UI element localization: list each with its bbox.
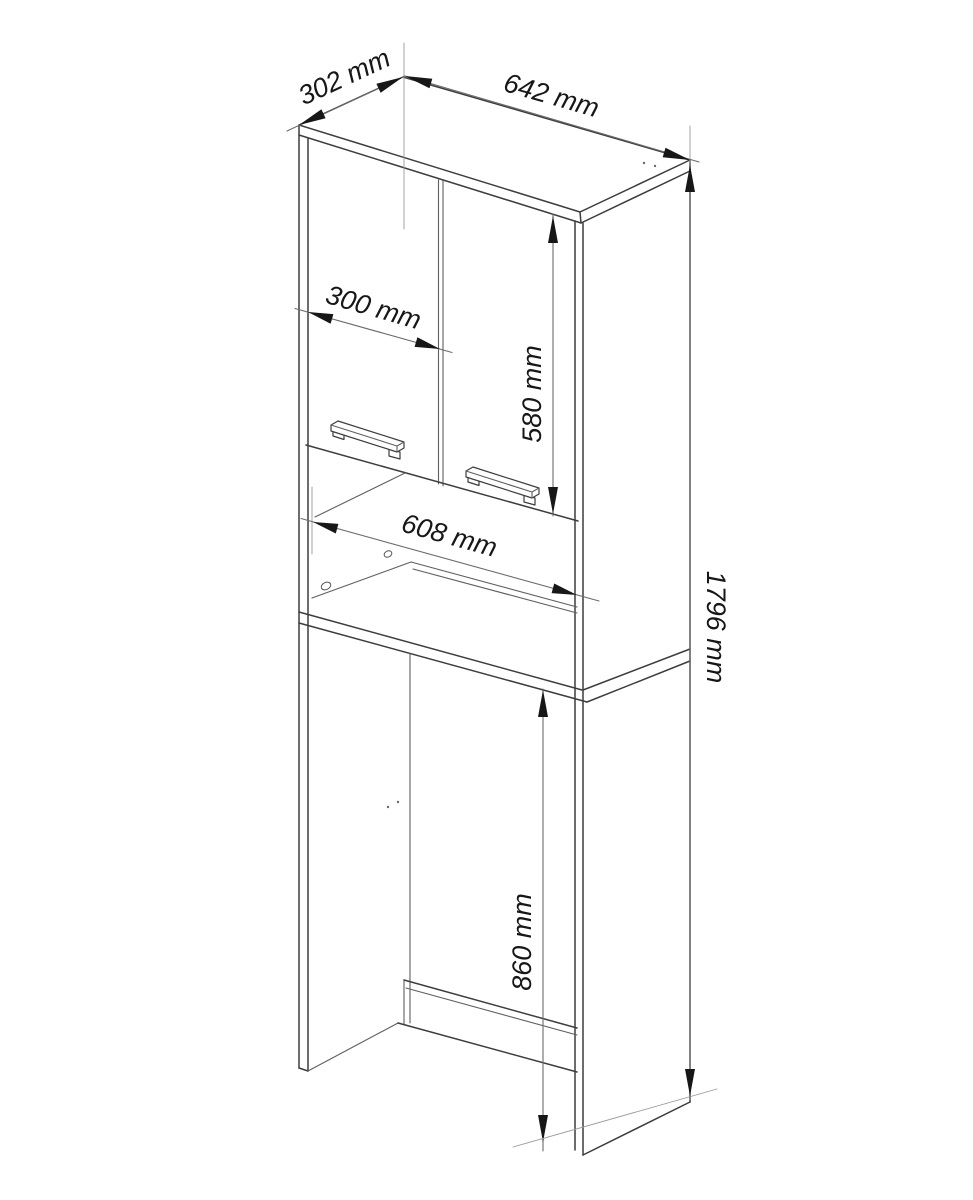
isometric-cabinet-diagram: 302 mm 642 mm 300 mm 580 mm 608 mm 860 m… [0, 0, 973, 1200]
door-handle-left [331, 421, 404, 459]
dimension-arrow [415, 337, 440, 349]
dimension-arrow [548, 487, 558, 514]
open-shelf-compartment [312, 550, 577, 613]
dimension-arrow [548, 216, 558, 243]
dimension-arrow [299, 109, 326, 125]
dimension-door-height: 580 mm [517, 214, 558, 516]
dim-door-height-label: 580 mm [517, 345, 547, 443]
top-face-marks [643, 162, 656, 167]
fitting-mark [397, 801, 399, 803]
dimension-total-height: 1796 mm [513, 163, 731, 1147]
dimension-depth: 302 mm [287, 43, 405, 229]
dimension-niche-height: 860 mm [507, 689, 548, 1151]
dimension-arrow [308, 312, 333, 324]
cabinet-technical-drawing: 302 mm 642 mm 300 mm 580 mm 608 mm 860 m… [0, 0, 973, 1200]
bottom-slab-band [299, 612, 690, 702]
dim-niche-height-label: 860 mm [507, 893, 537, 991]
fitting-mark [387, 806, 389, 808]
dim-door-width-label: 300 mm [322, 279, 424, 335]
dimension-arrow [376, 77, 403, 93]
dim-depth-label: 302 mm [294, 43, 395, 111]
dimension-arrow [685, 165, 695, 192]
dimension-arrow [538, 690, 548, 717]
dimension-door-width: 300 mm [295, 279, 452, 352]
cabinet-left-edge [299, 135, 398, 1071]
dimension-width: 642 mm [405, 67, 699, 176]
dim-inner-width-label: 608 mm [398, 508, 500, 563]
dimension-arrow [313, 522, 338, 534]
dim-width-label: 642 mm [500, 67, 602, 123]
dim-total-height-label: 1796 mm [701, 571, 731, 684]
washing-machine-niche [387, 654, 577, 1072]
dimension-arrow [538, 1115, 548, 1142]
dimension-arrow [552, 584, 577, 596]
shelf-pin-hole [383, 550, 393, 559]
cabinet-right-side [575, 171, 690, 1155]
dimension-arrow [685, 1069, 695, 1096]
cabinet-top-slab [299, 77, 690, 223]
dimension-arrow [405, 76, 432, 88]
shelf-pin-hole [320, 581, 332, 592]
dimension-arrow [663, 148, 690, 160]
